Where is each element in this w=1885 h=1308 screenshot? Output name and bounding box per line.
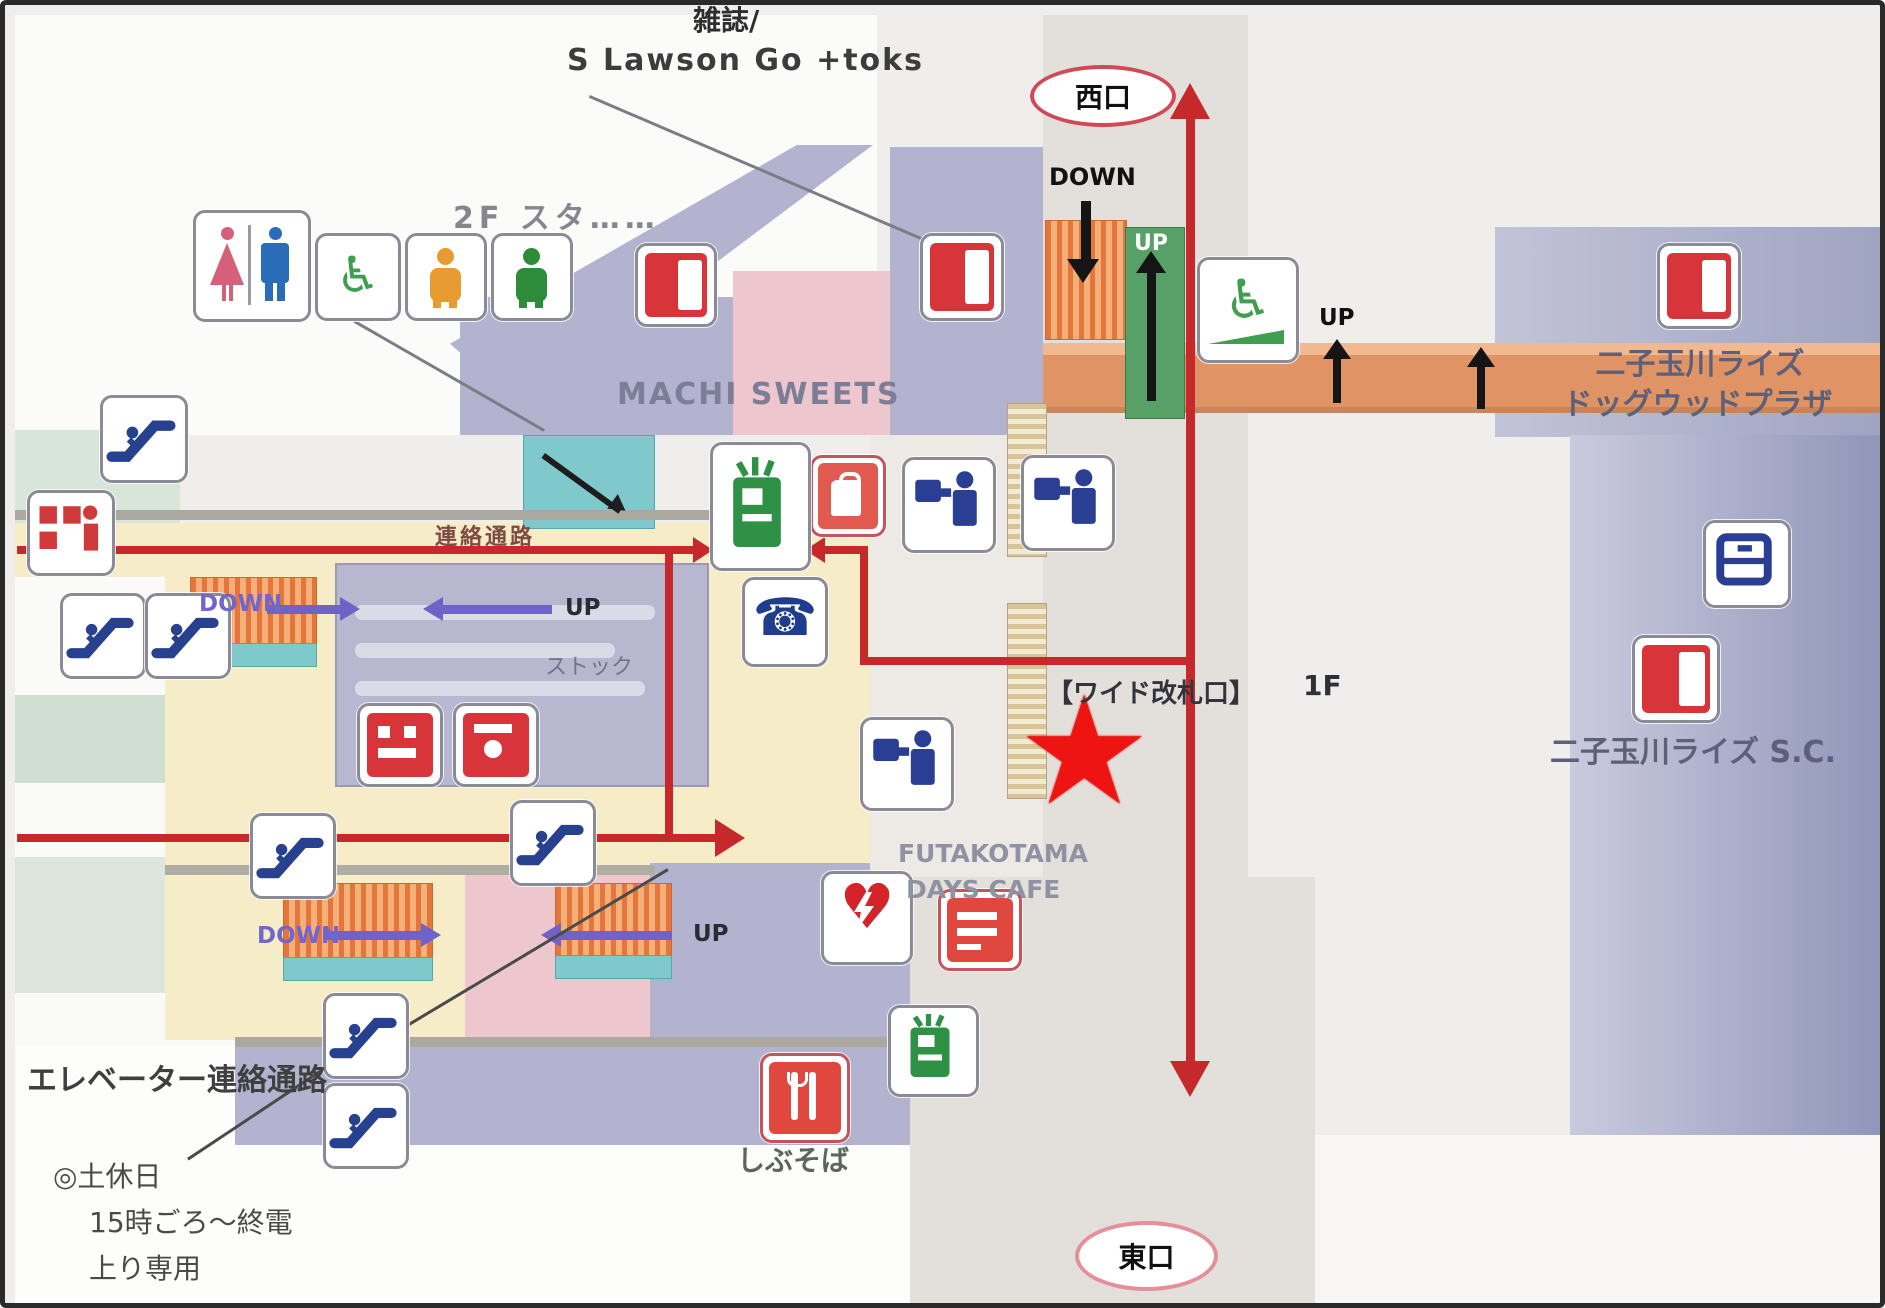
toilet-icon: [193, 210, 311, 322]
escalator-icon: [250, 813, 336, 899]
stair-upper-up-arrow: [442, 605, 552, 614]
slope-wheelchair-glyph: ♿: [1200, 268, 1296, 331]
stair-upper-down-arrow-head: [340, 597, 360, 621]
street-arrow-line: [1186, 117, 1195, 1063]
stair-upper-up-arrow-head: [423, 597, 443, 621]
east-exit-label: 東口: [1118, 1236, 1174, 1276]
down-arrow-head: [1067, 259, 1099, 283]
stair-lower-up-arrow: [560, 931, 672, 940]
ticket-vending-icon: [710, 442, 811, 571]
pictogram: [378, 748, 416, 758]
walkway-up-arrow2-head: [1467, 347, 1495, 367]
stair-lower-up: [555, 883, 672, 957]
weekend-note-1: ◎土休日: [53, 1155, 161, 1195]
west-exit-label: 西口: [1075, 76, 1131, 116]
wheelchair-glyph: ♿: [318, 246, 398, 304]
male-figure: [258, 227, 292, 301]
down-arrow-stem: [1081, 201, 1091, 259]
weekend-note-3: 上り専用: [89, 1247, 201, 1287]
entrance-icon: [1632, 635, 1720, 723]
walkway-up-arrow-head: [1323, 339, 1351, 359]
aed-bolt: [852, 892, 876, 930]
info-icon-red-2: [453, 703, 539, 787]
phone-glyph: ☎: [745, 588, 825, 648]
ticket-vending-icon: [888, 1005, 979, 1097]
route-line-h3: [860, 657, 1191, 665]
west-exit-oval: 西口: [1030, 65, 1176, 127]
coin-locker-icon: [1703, 520, 1791, 608]
ticket-office-icon: [902, 457, 996, 553]
pictogram: [378, 726, 390, 738]
escalator-icon: [323, 1083, 409, 1169]
white-area-bottom-right: [1315, 1135, 1885, 1308]
stair-lower-down-arrow-head: [421, 923, 441, 947]
stock-label: ストック: [545, 649, 633, 681]
green-box-up-arrow-stem: [1147, 271, 1156, 401]
rise-sc-label: 二子玉川ライズ S.C.: [1550, 727, 1836, 771]
divider: [248, 225, 251, 305]
cafe-label-1: FUTAKOTAMA: [898, 839, 1088, 868]
entrance-icon: [635, 243, 717, 327]
escalator-icon: [510, 800, 596, 886]
magazine-note: 雑誌/: [693, 0, 759, 39]
dogwood-label-2: ドッグウッドプラザ: [1505, 379, 1885, 423]
floor1-label: 1F: [1303, 669, 1342, 702]
platform-edge-3: [283, 957, 433, 981]
sweets-label: MACHI SWEETS: [617, 377, 901, 412]
route-arrowhead-big: [715, 819, 745, 857]
pictogram: [474, 724, 512, 733]
aed-icon: ♥: [821, 871, 913, 965]
escalator-icon: [60, 593, 146, 679]
pictogram: [404, 726, 416, 738]
up-green-label: UP: [1134, 231, 1168, 256]
route-line-a: [17, 546, 693, 554]
walkway-up-arrow-stem: [1333, 357, 1341, 403]
female-figure: [210, 227, 244, 301]
baby-room-icon: [405, 233, 487, 321]
stair-lower-up-label: UP: [693, 921, 729, 947]
route-line-v1: [665, 550, 673, 842]
coin-locker-icon-left: [27, 490, 115, 576]
stair-upper-down-label: DOWN: [199, 591, 282, 617]
ticket-office-icon: [1021, 455, 1115, 551]
corridor-label: 連絡通路: [435, 519, 535, 551]
red-panel: [367, 713, 433, 777]
info-icon-red-1: [357, 703, 443, 787]
up-walkway-label: UP: [1319, 305, 1355, 331]
platform-edge-4: [555, 955, 672, 979]
shibusoba-label: しぶそば: [737, 1139, 849, 1179]
info-box-textline: [355, 681, 645, 696]
kiosk-icon: [810, 455, 886, 537]
elevator-corridor-label: エレベーター連絡通路: [27, 1055, 327, 1099]
walkway-up-arrow2-stem: [1477, 365, 1485, 409]
cafe-label-2: DAYS CAFE: [906, 875, 1060, 904]
accessible-slope-icon: ♿: [1197, 257, 1299, 363]
station-map: ♿ ☎ ♥: [0, 0, 1885, 1308]
wheelchair-icon: ♿: [315, 233, 401, 321]
stair-upper-up-label: UP: [565, 595, 601, 621]
entrance-icon: [920, 233, 1004, 321]
route-line-v2: [860, 546, 868, 664]
phone-icon: ☎: [742, 577, 828, 667]
kids-room-icon: [491, 233, 573, 321]
white-area-left-2: [15, 782, 165, 857]
ticket-office-icon: [860, 717, 954, 811]
east-exit-oval: 東口: [1075, 1221, 1218, 1291]
pictogram: [484, 740, 502, 758]
street-arrowhead-up: [1170, 83, 1210, 119]
weekend-note-2: 15時ごろ〜終電: [89, 1201, 293, 1241]
escalator-icon: [100, 395, 188, 483]
dogwood-label-1: 二子玉川ライズ: [1535, 339, 1865, 383]
floor2-label: 2F スタ……: [453, 193, 660, 237]
street-arrowhead-down: [1170, 1061, 1210, 1097]
wide-gate-label: 【ワイド改札口】: [1047, 673, 1255, 710]
restaurant-icon: [760, 1053, 850, 1143]
lawson-label: S Lawson Go +toks: [567, 43, 924, 78]
route-line-c: [17, 834, 717, 842]
stair-lower-down-label: DOWN: [257, 923, 340, 949]
entrance-icon: [1657, 243, 1741, 329]
down-top-label: DOWN: [1049, 163, 1136, 191]
escalator-icon: [323, 993, 409, 1079]
slope-ramp: [1208, 330, 1284, 344]
